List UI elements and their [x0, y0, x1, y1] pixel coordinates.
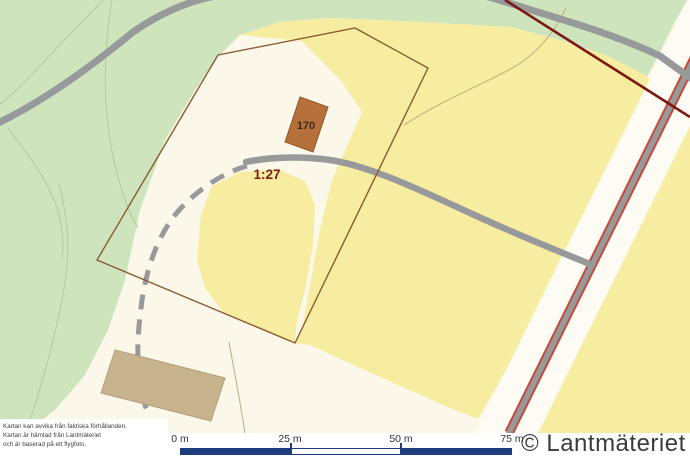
copyright-label: © Lantmäteriet: [521, 430, 690, 458]
building-number-label: 170: [297, 120, 315, 132]
scalebar-segment: [291, 448, 401, 455]
scalebar-segment: [180, 448, 291, 455]
map-canvas[interactable]: 170 1:27: [0, 0, 690, 433]
disclaimer-line: Kartan är hämtad från Lantmäteriet: [3, 432, 168, 441]
disclaimer-box: Kartan kan avvika från faktiska förhålla…: [0, 419, 168, 460]
parcel-id-label: 1:27: [253, 167, 280, 182]
scalebar-label-0m: 0 m: [158, 433, 202, 445]
scalebar-segment: [401, 448, 512, 455]
disclaimer-line: Kartan kan avvika från faktiska förhålla…: [3, 423, 168, 432]
map-viewport: 170 1:27 Kartan kan avvika från faktiska…: [0, 0, 690, 460]
disclaimer-line: och är baserad på ett flygfoto.: [3, 441, 168, 450]
